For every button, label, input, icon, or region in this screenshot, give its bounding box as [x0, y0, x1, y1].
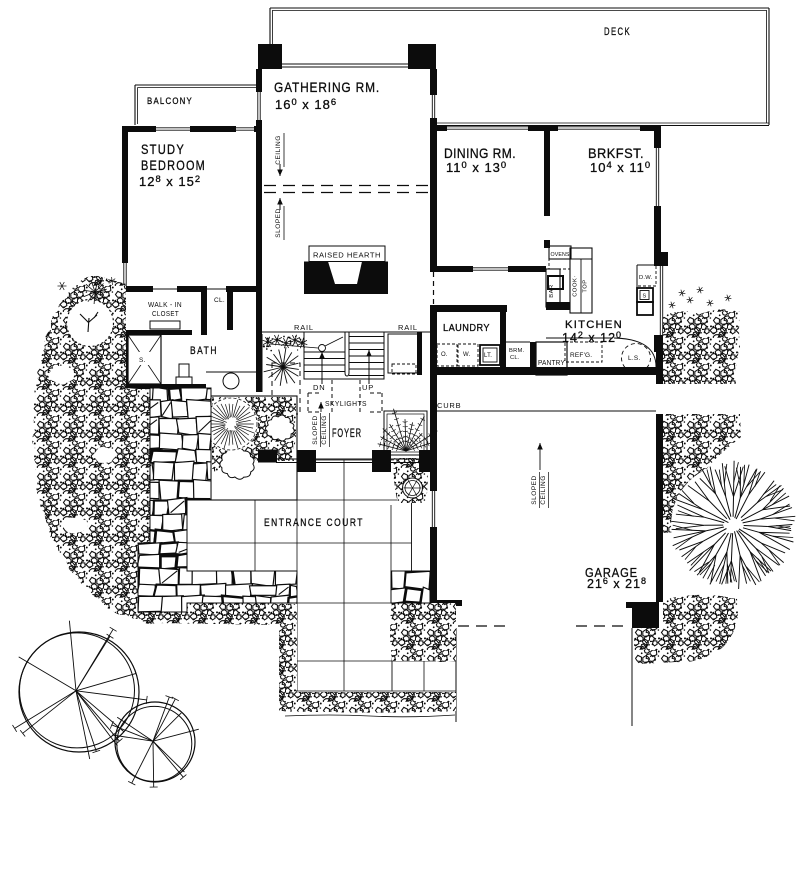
svg-text:DECK: DECK	[604, 26, 631, 38]
svg-text:BAR: BAR	[549, 284, 555, 297]
svg-text:BRKFST.: BRKFST.	[588, 145, 644, 161]
svg-text:BEDROOM: BEDROOM	[141, 158, 206, 173]
svg-text:CLOSET: CLOSET	[152, 309, 179, 318]
svg-text:S: S	[643, 294, 647, 300]
svg-text:SLOPED: SLOPED	[531, 475, 538, 504]
svg-text:128 x 152: 128 x 152	[139, 173, 201, 189]
svg-text:O.: O.	[441, 352, 448, 358]
svg-text:CEILING: CEILING	[540, 475, 547, 505]
svg-text:UP: UP	[362, 383, 374, 392]
svg-text:PANTRY: PANTRY	[538, 360, 565, 367]
svg-text:TOP: TOP	[583, 279, 589, 292]
svg-text:GATHERING RM.: GATHERING RM.	[274, 79, 380, 95]
svg-text:FOYER: FOYER	[332, 428, 362, 440]
svg-text:L.S.: L.S.	[628, 355, 640, 362]
svg-text:OVENS: OVENS	[551, 252, 570, 258]
svg-text:BATH: BATH	[190, 345, 218, 357]
svg-text:BALCONY: BALCONY	[147, 96, 193, 107]
svg-text:BRM.: BRM.	[509, 348, 524, 354]
svg-text:104 x 110: 104 x 110	[590, 159, 651, 175]
svg-text:RAIL: RAIL	[398, 323, 418, 332]
svg-text:RAIL: RAIL	[294, 323, 314, 332]
svg-text:STUDY: STUDY	[141, 142, 185, 157]
svg-text:CL.: CL.	[510, 355, 520, 361]
svg-text:COOK·: COOK·	[573, 275, 579, 297]
svg-text:LAUNDRY: LAUNDRY	[443, 323, 490, 334]
svg-text:216 x 218: 216 x 218	[587, 576, 647, 591]
svg-text:CEILING: CEILING	[275, 135, 282, 165]
svg-text:SLOPED: SLOPED	[275, 208, 282, 237]
svg-text:W.: W.	[463, 352, 471, 358]
svg-text:REF'G.: REF'G.	[570, 352, 592, 359]
svg-text:CURB: CURB	[437, 401, 461, 410]
svg-text:RAISED HEARTH: RAISED HEARTH	[313, 251, 381, 260]
svg-text:SLOPED: SLOPED	[312, 415, 319, 444]
svg-text:LT.: LT.	[484, 353, 492, 359]
svg-text:D.W.: D.W.	[639, 275, 653, 281]
svg-text:CL.: CL.	[214, 297, 225, 304]
svg-text:DN: DN	[313, 383, 325, 392]
svg-text:SKYLIGHTS: SKYLIGHTS	[325, 399, 367, 408]
svg-text:160 x 186: 160 x 186	[275, 96, 337, 112]
svg-text:S.: S.	[139, 357, 146, 364]
svg-text:CEILING: CEILING	[321, 415, 328, 445]
svg-text:KITCHEN: KITCHEN	[565, 319, 623, 331]
svg-text:110 x 130: 110 x 130	[446, 159, 507, 175]
svg-text:ENTRANCE COURT: ENTRANCE COURT	[264, 517, 364, 529]
svg-text:WALK - IN: WALK - IN	[148, 300, 182, 309]
